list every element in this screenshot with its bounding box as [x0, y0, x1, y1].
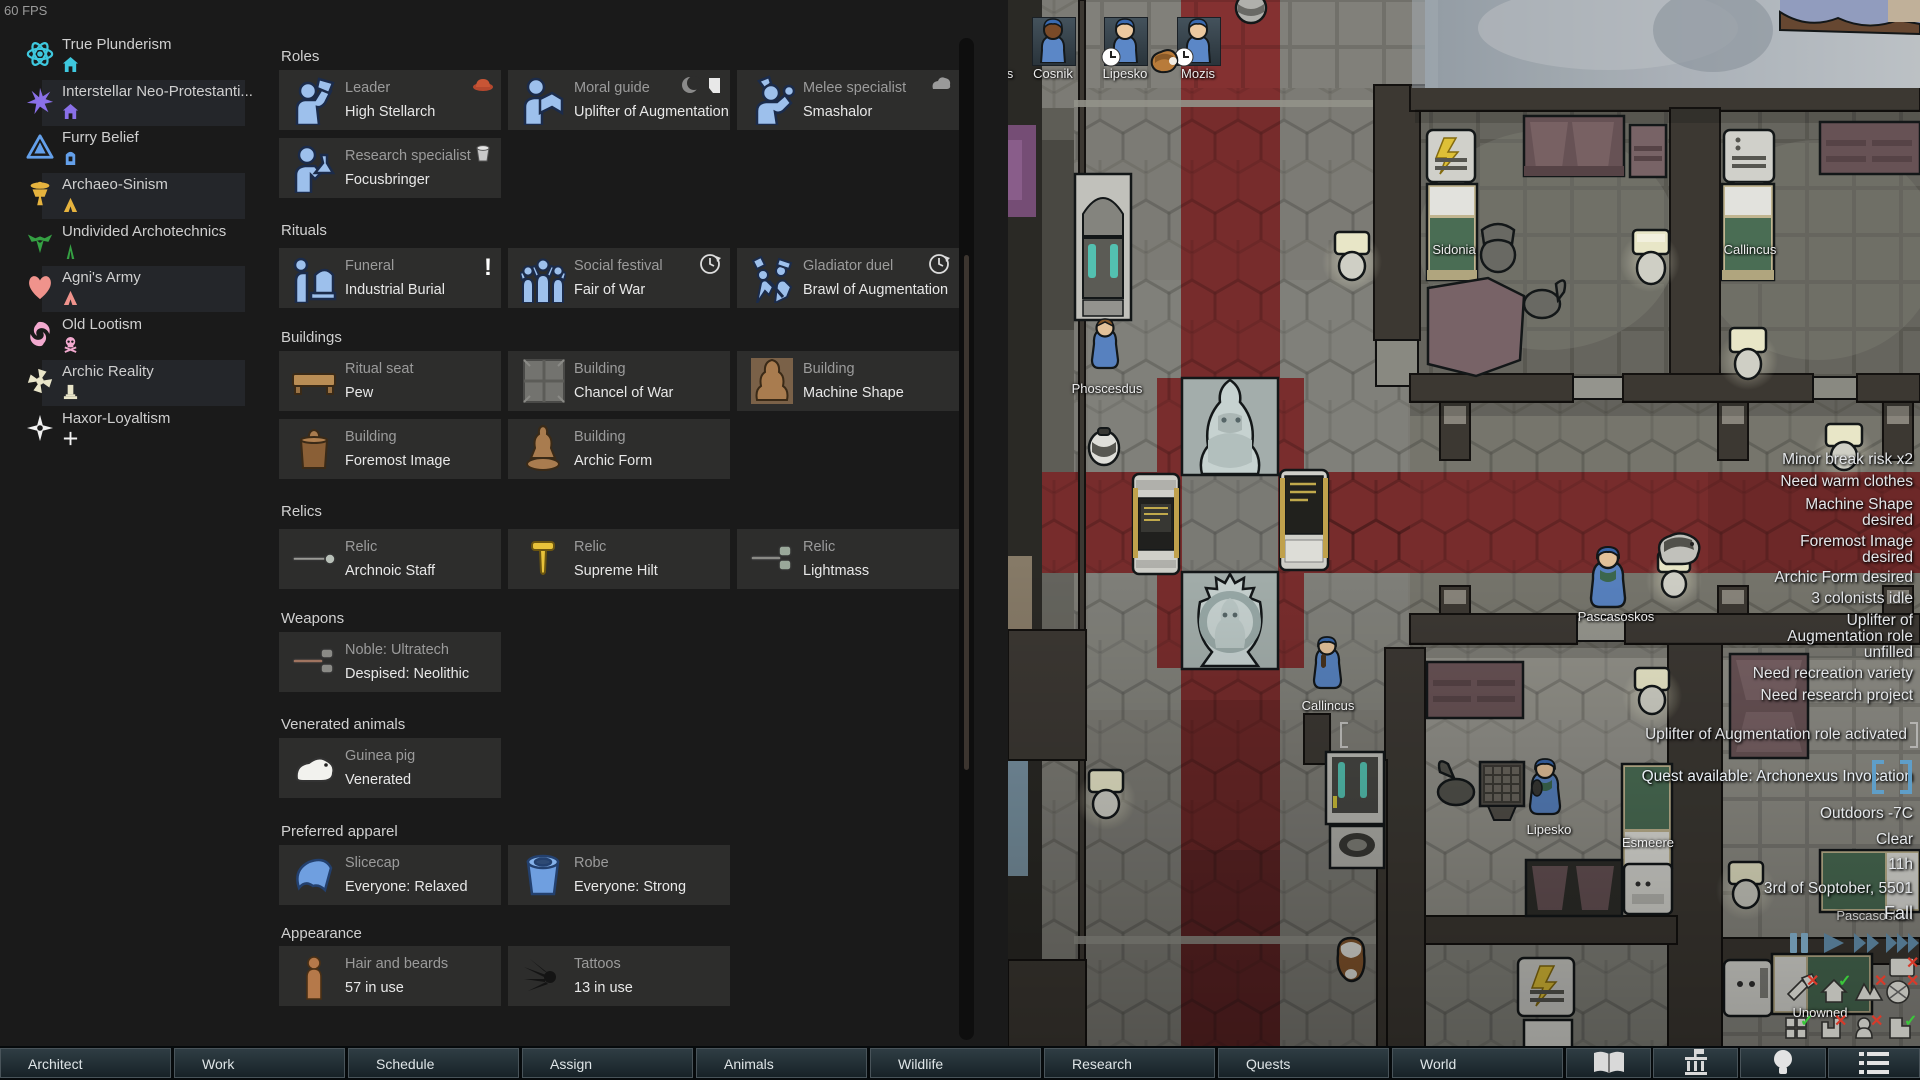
svg-text:✕: ✕	[1806, 973, 1819, 990]
svg-text:✓: ✓	[1904, 1013, 1917, 1030]
svg-text:✓: ✓	[1838, 973, 1851, 990]
svg-text:!: !	[484, 254, 492, 279]
svg-text:✕: ✕	[1906, 973, 1919, 990]
svg-text:✕: ✕	[1906, 956, 1919, 972]
svg-text:✕: ✕	[1834, 1013, 1847, 1030]
svg-text:✓: ✓	[1800, 1013, 1813, 1030]
svg-text:✕: ✕	[1874, 973, 1887, 990]
svg-text:✕: ✕	[1870, 1013, 1883, 1030]
